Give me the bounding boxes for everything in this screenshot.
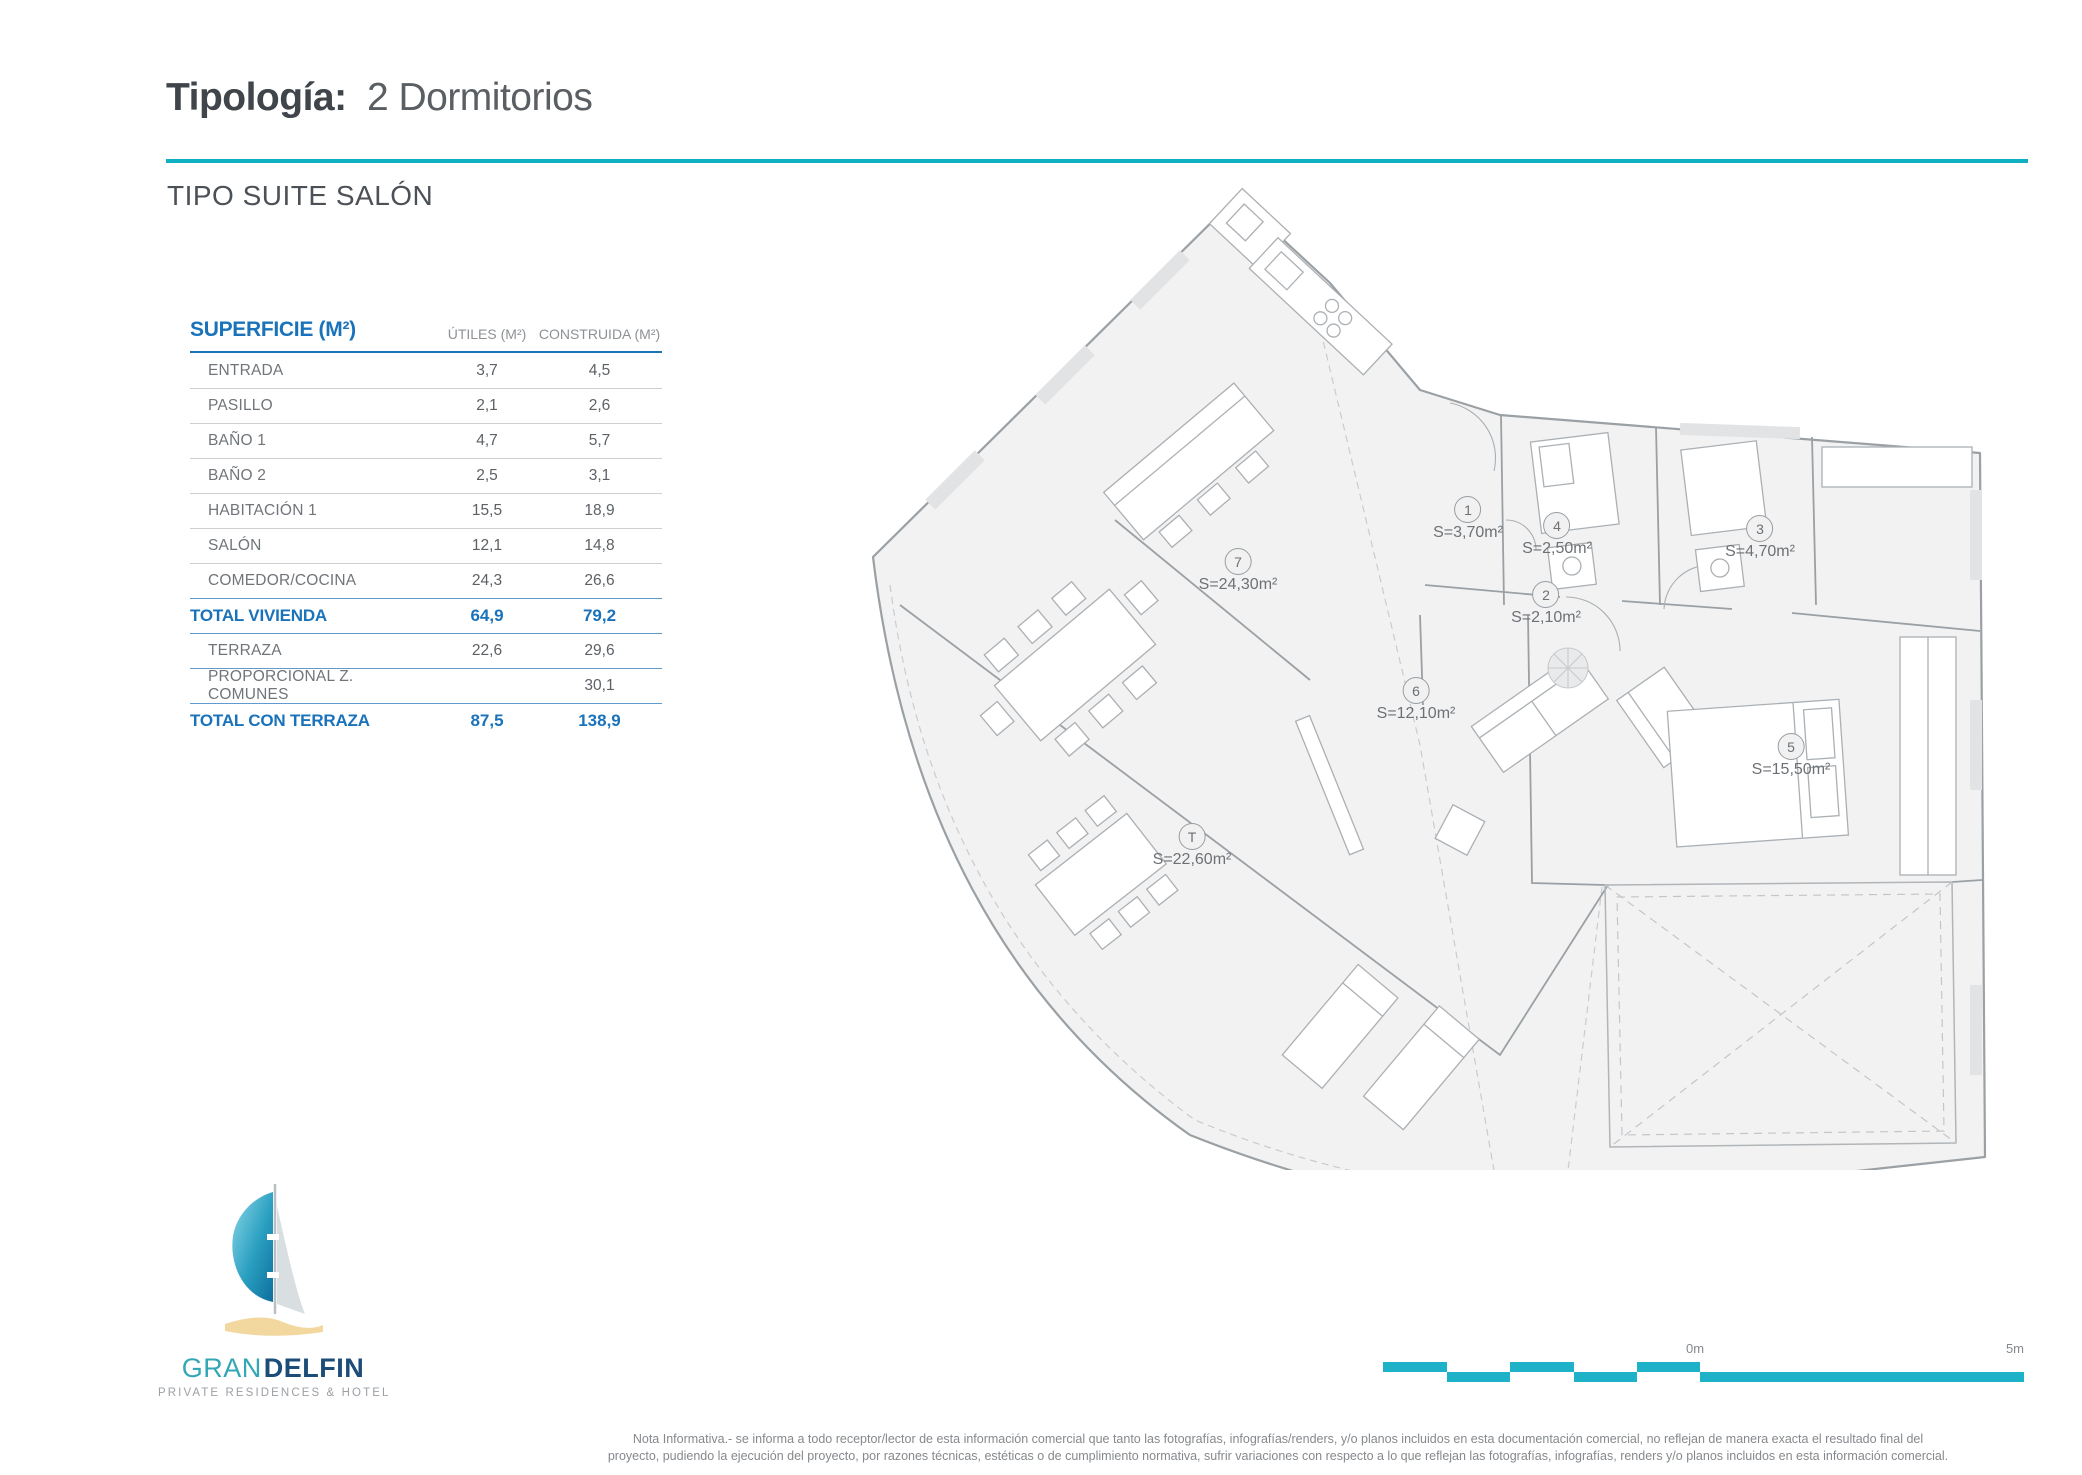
scale-zero-label: 0m <box>1686 1341 1704 1356</box>
scale-segment <box>1383 1362 1447 1372</box>
page-title: Tipología: 2 Dormitorios <box>166 76 592 120</box>
table-row: BAÑO 22,53,1 <box>190 458 662 493</box>
title-value: 2 Dormitorios <box>367 76 592 119</box>
brand-logo: GRANDELFIN PRIVATE RESIDENCES & HOTEL <box>158 1182 388 1399</box>
scale-five-label: 5m <box>2006 1341 2024 1356</box>
room-label-terraza: T S=22,60m² <box>1153 823 1232 869</box>
scale-segment <box>1510 1362 1574 1372</box>
logo-wordmark: GRANDELFIN <box>158 1353 388 1384</box>
legal-disclaimer: Nota Informativa.- se informa a todo rec… <box>518 1431 2038 1465</box>
table-row: TERRAZA22,629,6 <box>190 633 662 668</box>
col-utiles: ÚTILES (M²) <box>437 326 537 342</box>
room-label-bano2: 4 S=2,50m² <box>1522 512 1592 558</box>
room-label-habitacion: 5 S=15,50m² <box>1752 733 1831 779</box>
table-row: SALÓN12,114,8 <box>190 528 662 563</box>
header-divider <box>166 159 2028 163</box>
scale-segment <box>1700 1372 2024 1382</box>
page-subtitle: TIPO SUITE SALÓN <box>167 180 433 212</box>
table-row: ENTRADA3,74,5 <box>190 353 662 388</box>
disclaimer-line2: proyecto, pudiendo la ejecución del proy… <box>518 1448 2038 1465</box>
disclaimer-line1: Nota Informativa.- se informa a todo rec… <box>518 1431 2038 1448</box>
room-label-comedor: 7 S=24,30m² <box>1199 548 1278 594</box>
room-label-bano1: 3 S=4,70m² <box>1725 515 1795 561</box>
sail-logo-icon <box>211 1182 335 1342</box>
surface-table-header: SUPERFICIE (M²) ÚTILES (M²) CONSTRUIDA (… <box>190 318 662 353</box>
title-label: Tipología: <box>166 76 347 119</box>
room-label-salon: 6 S=12,10m² <box>1377 677 1456 723</box>
surface-table: SUPERFICIE (M²) ÚTILES (M²) CONSTRUIDA (… <box>190 318 662 738</box>
col-construida: CONSTRUIDA (M²) <box>537 326 662 342</box>
table-row: COMEDOR/COCINA24,326,6 <box>190 563 662 598</box>
scale-bar: 0m 5m <box>1383 1341 2024 1385</box>
room-label-pasillo: 2 S=2,10m² <box>1511 581 1581 627</box>
table-row: PROPORCIONAL Z. COMUNES30,1 <box>190 668 662 703</box>
table-row-total-vivienda: TOTAL VIVIENDA64,979,2 <box>190 598 662 633</box>
logo-tagline: PRIVATE RESIDENCES & HOTEL <box>158 1387 388 1399</box>
floor-plan: 1 S=3,70m² 2 S=2,10m² 3 S=4,70m² 4 S=2,5… <box>860 185 2000 1170</box>
scale-segment <box>1637 1362 1700 1372</box>
table-row: PASILLO2,12,6 <box>190 388 662 423</box>
table-row: HABITACIÓN 115,518,9 <box>190 493 662 528</box>
table-row: BAÑO 14,75,7 <box>190 423 662 458</box>
room-label-entrada: 1 S=3,70m² <box>1433 496 1503 542</box>
col-superficie: SUPERFICIE (M²) <box>190 318 437 342</box>
scale-segment <box>1574 1372 1637 1382</box>
brochure-page: Tipología: 2 Dormitorios TIPO SUITE SALÓ… <box>0 0 2082 1475</box>
scale-segment <box>1447 1372 1510 1382</box>
table-row-total-terraza: TOTAL CON TERRAZA87,5138,9 <box>190 703 662 738</box>
